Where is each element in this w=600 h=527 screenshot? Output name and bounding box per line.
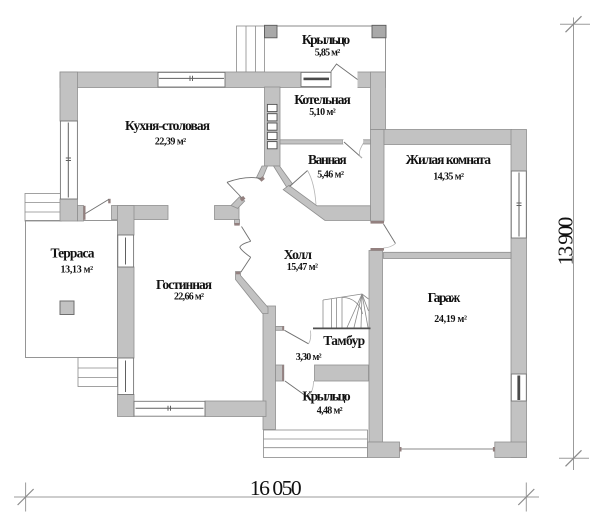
svg-text:13 900: 13 900 bbox=[554, 217, 578, 266]
svg-text:15,47 м²: 15,47 м² bbox=[287, 262, 318, 273]
svg-text:Жилая комната: Жилая комната bbox=[406, 152, 492, 167]
svg-text:Терраса: Терраса bbox=[51, 246, 95, 261]
svg-text:Кухня-столовая: Кухня-столовая bbox=[125, 118, 210, 133]
svg-text:Гараж: Гараж bbox=[428, 290, 461, 305]
svg-text:16 050: 16 050 bbox=[250, 476, 302, 500]
svg-text:Холл: Холл bbox=[284, 247, 313, 262]
svg-text:5,10 м²: 5,10 м² bbox=[309, 107, 336, 118]
svg-text:13,13 м²: 13,13 м² bbox=[61, 264, 94, 275]
svg-text:14,35 м²: 14,35 м² bbox=[433, 172, 464, 183]
svg-text:Котельная: Котельная bbox=[294, 92, 351, 107]
svg-text:22,39 м²: 22,39 м² bbox=[155, 137, 186, 148]
svg-text:5,85 м²: 5,85 м² bbox=[315, 48, 341, 59]
svg-text:Ванная: Ванная bbox=[308, 152, 347, 167]
svg-text:Гостинная: Гостинная bbox=[156, 277, 212, 292]
svg-text:4,48 м²: 4,48 м² bbox=[317, 406, 343, 417]
svg-text:5,46 м²: 5,46 м² bbox=[317, 170, 344, 181]
svg-text:3,30 м²: 3,30 м² bbox=[296, 352, 322, 363]
svg-text:Крыльцо: Крыльцо bbox=[302, 388, 351, 403]
svg-text:22,66 м²: 22,66 м² bbox=[174, 291, 204, 302]
svg-text:Крыльцо: Крыльцо bbox=[302, 32, 351, 47]
svg-text:24,19 м²: 24,19 м² bbox=[434, 314, 467, 325]
svg-text:Тамбур: Тамбур bbox=[323, 333, 365, 348]
